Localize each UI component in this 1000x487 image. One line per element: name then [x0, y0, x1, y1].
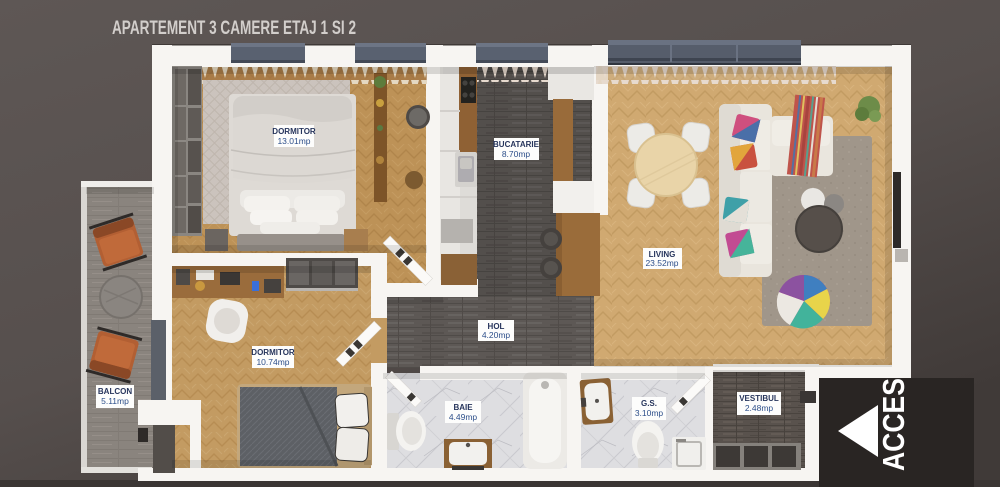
- svg-text:8.70mp: 8.70mp: [502, 149, 531, 159]
- svg-text:5.11mp: 5.11mp: [101, 396, 129, 406]
- svg-text:BAIE: BAIE: [453, 403, 473, 412]
- svg-text:APARTEMENT 3 CAMERE ETAJ 1 SI: APARTEMENT 3 CAMERE ETAJ 1 SI 2: [112, 18, 356, 39]
- svg-text:ACCES: ACCES: [876, 378, 911, 471]
- svg-text:G.S.: G.S.: [641, 399, 657, 408]
- svg-text:DORMITOR: DORMITOR: [272, 127, 316, 136]
- svg-text:3.10mp: 3.10mp: [635, 408, 664, 418]
- svg-text:BUCATARIE: BUCATARIE: [493, 140, 540, 149]
- svg-text:DORMITOR: DORMITOR: [251, 348, 295, 357]
- svg-text:23.52mp: 23.52mp: [645, 258, 678, 268]
- svg-text:4.20mp: 4.20mp: [482, 330, 511, 340]
- svg-text:BALCON: BALCON: [98, 387, 132, 396]
- svg-text:4.49mp: 4.49mp: [449, 412, 478, 422]
- svg-text:VESTIBUL: VESTIBUL: [739, 394, 779, 403]
- svg-text:13.01mp: 13.01mp: [277, 136, 310, 146]
- svg-text:2.48mp: 2.48mp: [745, 403, 774, 413]
- svg-text:10.74mp: 10.74mp: [256, 357, 289, 367]
